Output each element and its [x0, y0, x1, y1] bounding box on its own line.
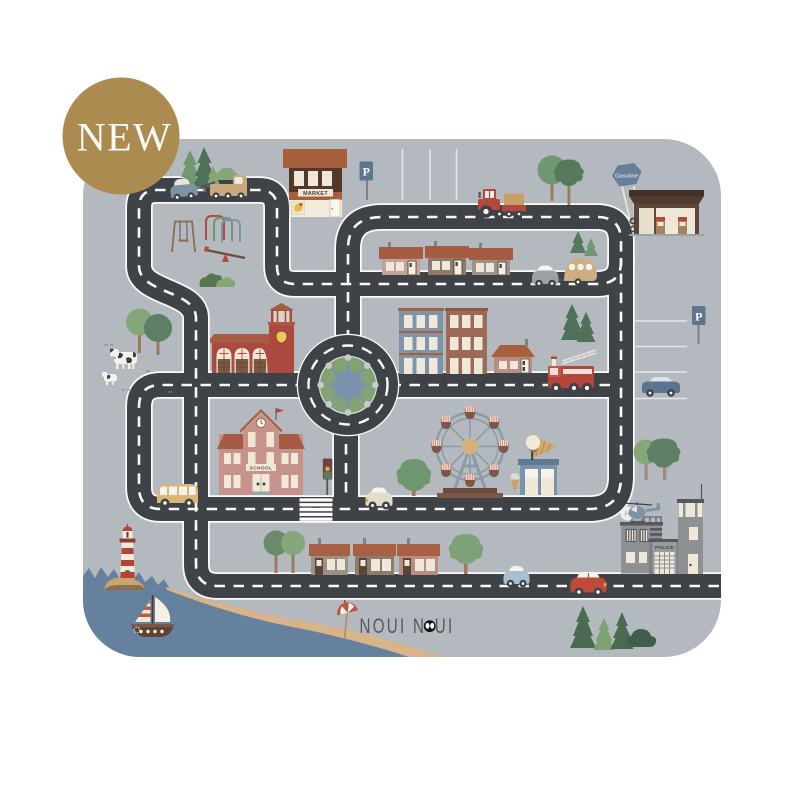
svg-text:SCHOOL: SCHOOL — [250, 465, 273, 471]
svg-text:MARKET: MARKET — [303, 191, 328, 197]
svg-text:NOUI N: NOUI N — [360, 613, 427, 637]
svg-text:POLICE: POLICE — [655, 545, 675, 551]
svg-text:UI: UI — [435, 613, 455, 637]
svg-text:P: P — [363, 165, 370, 179]
svg-text:Gasoline: Gasoline — [615, 174, 638, 180]
svg-text:NEW: NEW — [77, 115, 173, 160]
svg-text:P: P — [695, 310, 702, 324]
